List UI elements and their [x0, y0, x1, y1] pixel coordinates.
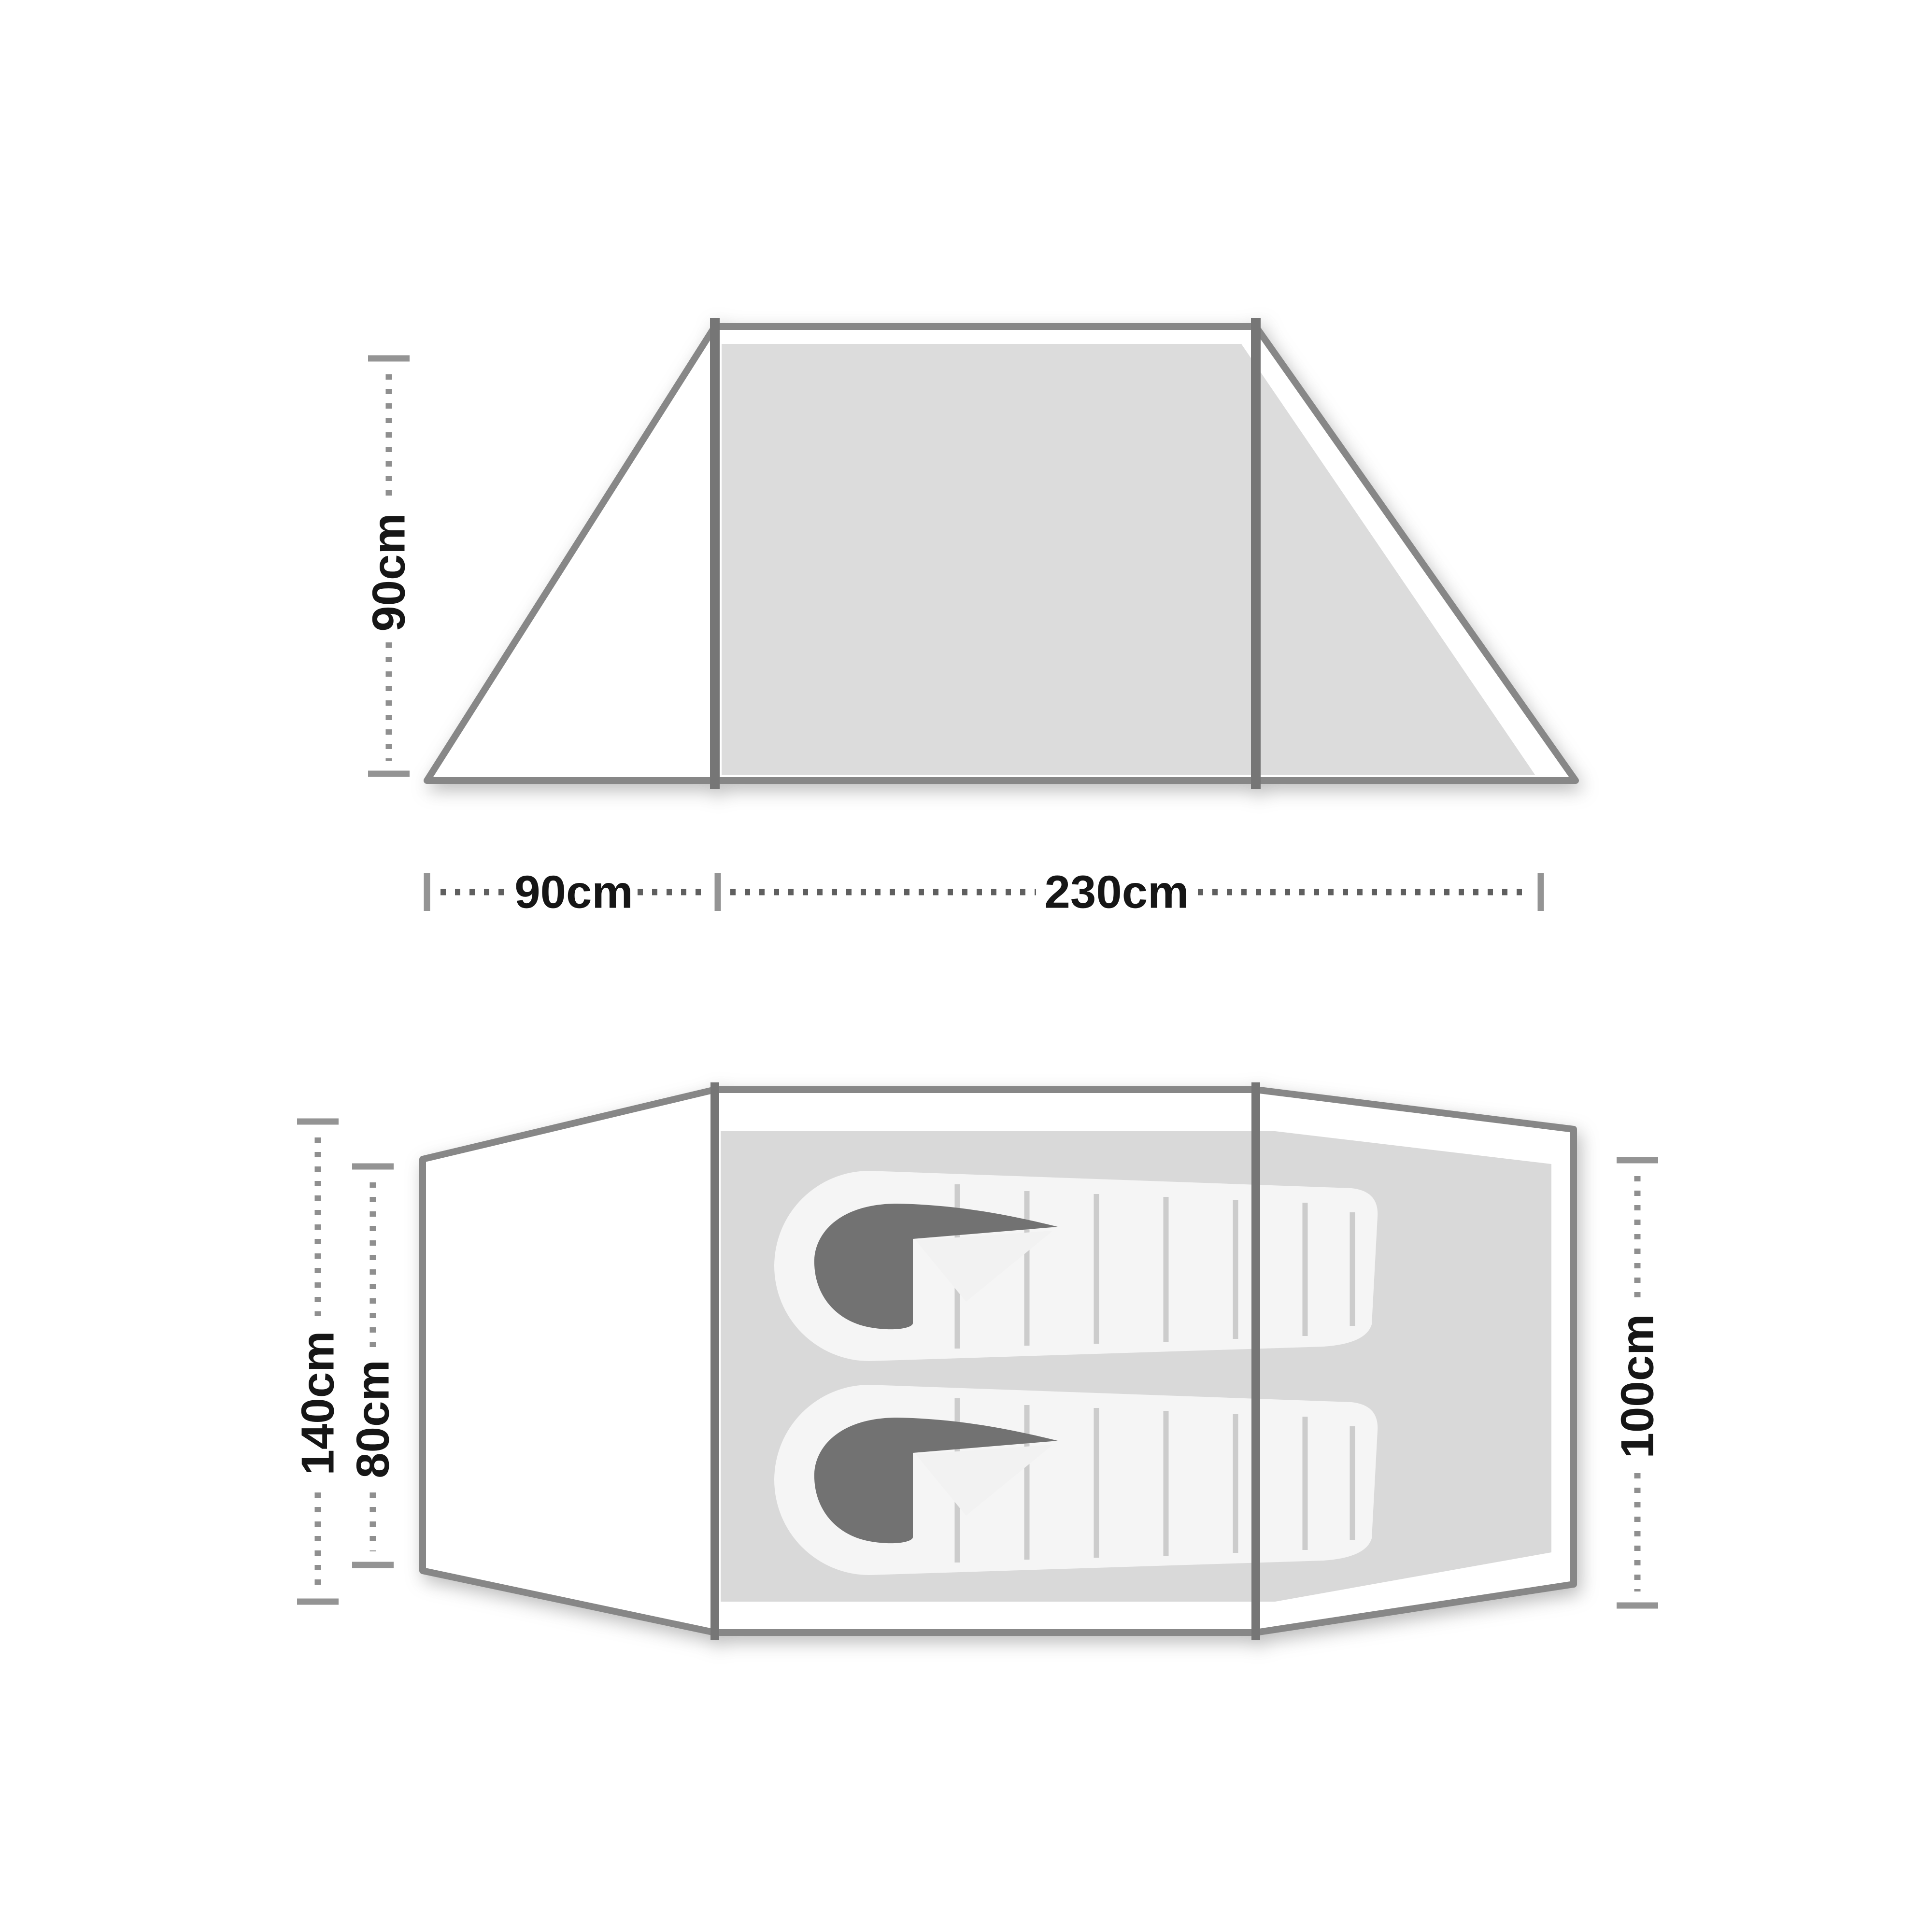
inner-width-label: 100cm: [1612, 1314, 1663, 1459]
inner-length-label: 230cm: [1045, 867, 1189, 918]
dimension-porch-depth: 80cm: [347, 1166, 399, 1565]
porch-width-label: 90cm: [514, 867, 633, 918]
side-view-tent: [427, 323, 1576, 784]
dimension-ground: 90cm 230cm: [427, 867, 1541, 918]
top-view-tent: [423, 1087, 1574, 1635]
sleeping-bag: [774, 1171, 1378, 1361]
dimension-height: 90cm: [363, 358, 415, 774]
side-view: 90cm 90cm 230cm: [363, 323, 1576, 918]
dimension-overall-width: 140cm: [292, 1122, 344, 1602]
porch-depth-label: 80cm: [347, 1360, 399, 1478]
tent-dimensions-diagram: 90cm 90cm 230cm: [0, 0, 1932, 1932]
top-view: 140cm 80cm 100cm: [292, 1087, 1663, 1635]
overall-width-label: 140cm: [292, 1331, 344, 1476]
dimension-inner-width: 100cm: [1612, 1160, 1663, 1605]
height-dimension-label: 90cm: [363, 513, 415, 632]
sleeping-bag: [774, 1385, 1378, 1575]
diagram-canvas: 90cm 90cm 230cm: [0, 0, 1932, 1932]
